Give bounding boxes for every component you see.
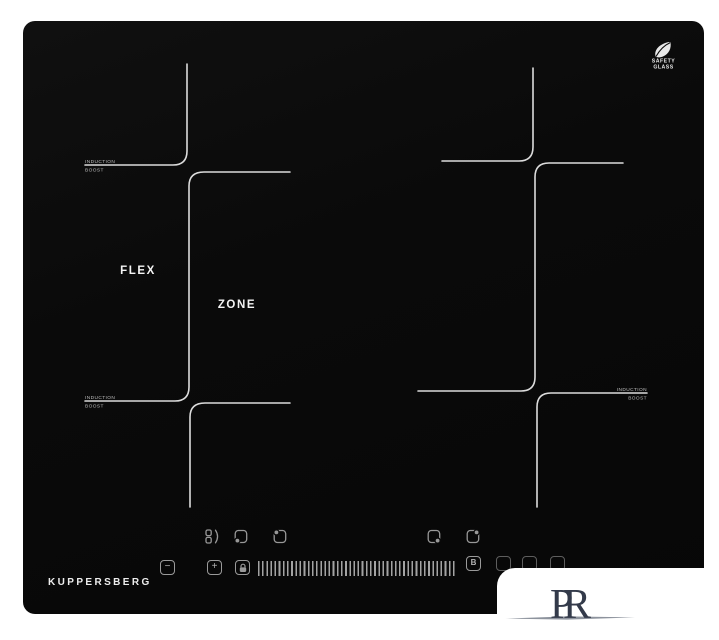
front-right-zone-icon[interactable] xyxy=(427,529,443,544)
power-slider[interactable] xyxy=(258,561,457,576)
monogram-letter-r: R xyxy=(563,582,591,628)
minus-button[interactable]: − xyxy=(160,560,175,575)
rear-left-zone-icon[interactable] xyxy=(273,529,289,544)
lock-icon xyxy=(237,562,249,574)
lock-button[interactable] xyxy=(235,560,250,575)
pr-monogram: P R xyxy=(497,568,719,640)
front-left-zone-icon[interactable] xyxy=(234,529,250,544)
watermark-card: P R xyxy=(497,568,719,640)
boost-button[interactable]: B xyxy=(466,556,481,571)
rear-right-zone-icon[interactable] xyxy=(466,529,482,544)
product-photo: INDUCTION BOOST INDUCTION BOOST INDUCTIO… xyxy=(0,0,719,640)
plus-button[interactable]: + xyxy=(207,560,222,575)
flex-bridge-zone-icon[interactable] xyxy=(205,529,221,544)
cooktop-surface xyxy=(23,21,704,614)
brand-logo: KUPPERSBERG xyxy=(48,577,152,588)
